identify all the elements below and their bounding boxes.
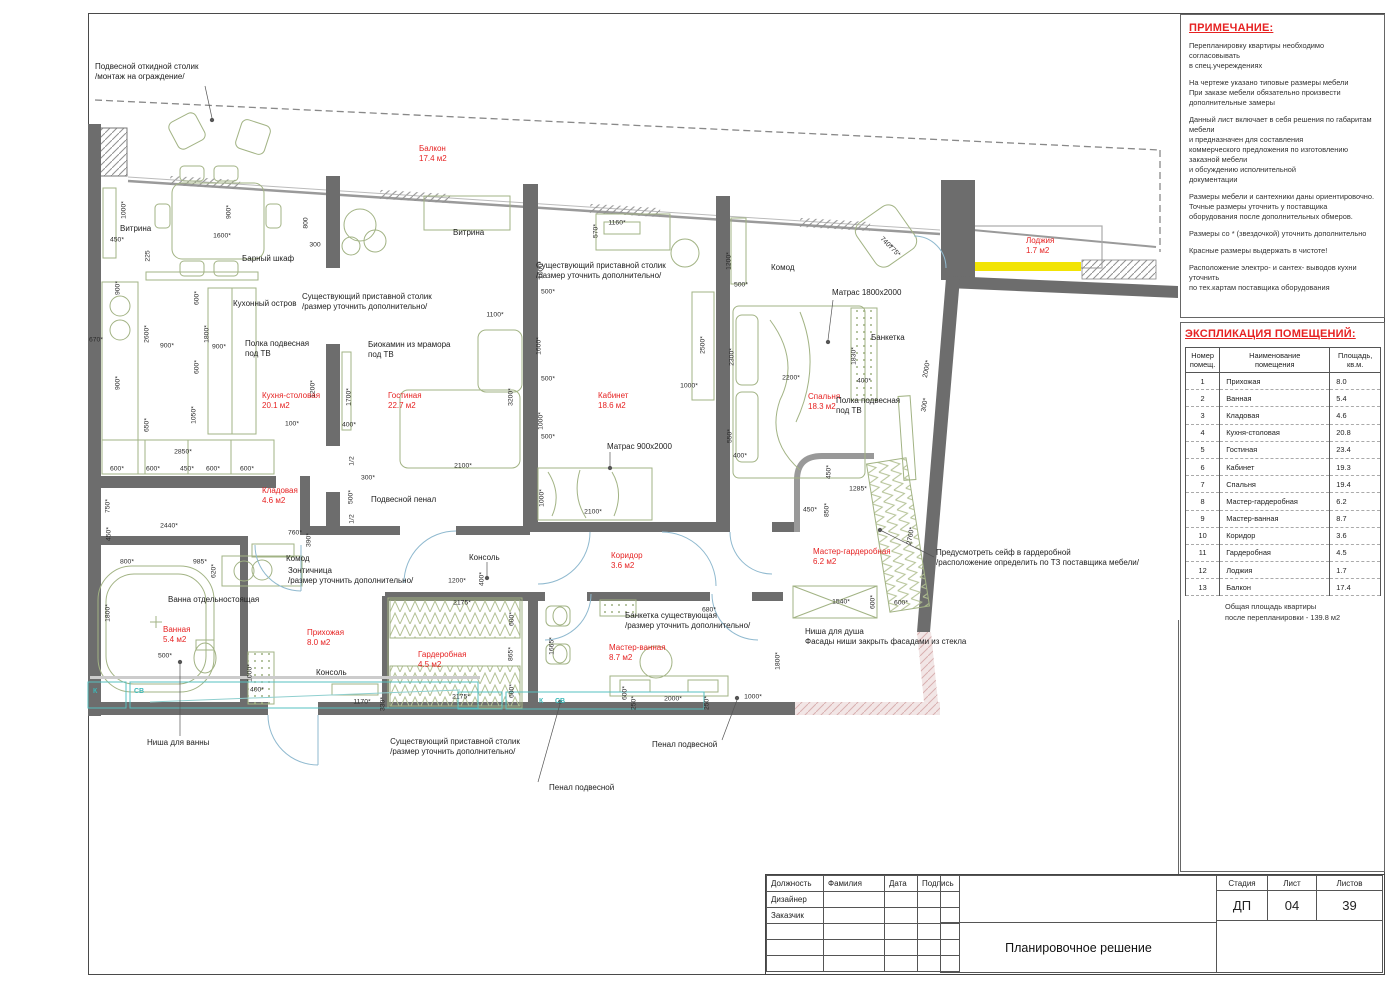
signature-table-body: ДизайнерЗаказчик: [767, 892, 960, 972]
dimension-label: 500*: [348, 490, 355, 504]
signature-row: [767, 940, 960, 956]
dimension-label: 225: [145, 250, 152, 261]
explication-row: 6Кабинет19.3: [1186, 458, 1381, 475]
dimension-label: 1800*: [105, 604, 112, 622]
explication-row: 9Мастер-ванная8.7: [1186, 510, 1381, 527]
dimension-label: 600*: [206, 466, 220, 473]
explication-cell: 4.6: [1330, 407, 1381, 424]
annotation-label: Предусмотреть сейф в гардеробной /распол…: [936, 548, 1139, 568]
dimension-label: 1000*: [538, 412, 545, 430]
dimension-label: 850*: [824, 503, 831, 517]
explication-cell: 7: [1186, 476, 1220, 493]
annotation-label: Консоль: [469, 553, 500, 563]
room-label: Кабинет 18.6 м2: [598, 391, 628, 410]
drawing-sheet: Балкон 17.4 м2Кухня-столовая 20.1 м2Гост…: [0, 0, 1400, 990]
dimension-label: 1285*: [849, 486, 867, 493]
dimension-label: 1100*: [486, 312, 503, 319]
annotation-label: Кухонный остров: [233, 299, 297, 309]
explication-cell: Коридор: [1220, 527, 1330, 544]
dimension-label: 390*: [306, 533, 313, 547]
signature-header-cell: Фамилия: [824, 876, 885, 892]
explication-cell: 13: [1186, 579, 1220, 596]
note-paragraph: Перепланировку квартиры необходимо согла…: [1189, 41, 1376, 71]
dimension-label: 900*: [226, 205, 233, 219]
annotation-label: Биокамин из мрамора под ТВ: [368, 340, 451, 360]
notes-panel: ПРИМЕЧАНИЕ: Перепланировку квартиры необ…: [1180, 14, 1385, 318]
room-label: Мастер-гардеробная 6.2 м2: [813, 547, 891, 566]
annotation-label: Банкетка существующая /размер уточнить д…: [625, 611, 750, 631]
explication-row: 13Балкон17.4: [1186, 579, 1381, 596]
dimension-label: 750*: [105, 499, 112, 513]
dimension-label: 570*: [593, 224, 600, 238]
signature-cell: [885, 892, 918, 908]
note-paragraph: Размеры со * (звездочкой) уточнить допол…: [1189, 229, 1376, 239]
dimension-label: 250*: [631, 696, 638, 710]
dimension-label: 2850*: [174, 449, 192, 456]
signature-cell: [767, 924, 824, 940]
dimension-label: 900*: [115, 376, 122, 390]
utility-label: К: [93, 688, 97, 695]
explication-cell: 4.5: [1330, 544, 1381, 561]
notes-paragraphs: Перепланировку квартиры необходимо согла…: [1189, 41, 1376, 293]
note-paragraph: Расположение электро- и сантех- выводов …: [1189, 263, 1376, 293]
dimension-label: 1200*: [310, 380, 317, 398]
sheet-label: Лист: [1267, 875, 1317, 891]
dimension-label: 330*: [380, 697, 387, 711]
dimension-label: 1000*: [538, 261, 545, 279]
dimension-label: 2100*: [454, 463, 472, 470]
room-label: Балкон 17.4 м2: [419, 144, 447, 163]
dimension-label: 450*: [826, 465, 833, 479]
explication-table: Номер помещ. Наименование помещения Площ…: [1185, 347, 1381, 596]
dimension-label: 1800*: [204, 325, 211, 343]
dimension-label: 400*: [342, 422, 356, 429]
utility-label: СВ: [134, 688, 144, 695]
signature-cell: [824, 924, 885, 940]
explication-cell: Кладовая: [1220, 407, 1330, 424]
dimension-label: 2175*: [453, 600, 471, 607]
dimension-label: 1/2: [349, 514, 356, 523]
explication-row: 7Спальня19.4: [1186, 476, 1381, 493]
dimension-label: 985*: [193, 559, 207, 566]
dimension-label: 500*: [734, 282, 748, 289]
explication-cell: 6.2: [1330, 493, 1381, 510]
signature-row: Дизайнер: [767, 892, 960, 908]
dimension-label: 600*: [194, 360, 201, 374]
dimension-label: 300*: [920, 397, 929, 412]
explication-cell: 3: [1186, 407, 1220, 424]
title-block-empty-right: [1216, 920, 1383, 973]
sheet-value: 04: [1267, 890, 1317, 921]
dimension-label: 600*: [894, 600, 908, 607]
dimension-label: 1000*: [121, 201, 128, 219]
signature-cell: [824, 940, 885, 956]
annotation-label: Консоль: [316, 668, 347, 678]
notes-title: ПРИМЕЧАНИЕ:: [1189, 22, 1376, 34]
annotation-label: Барный шкаф: [242, 254, 294, 264]
dimension-label: 1200*: [726, 252, 733, 270]
explication-cell: 23.4: [1330, 441, 1381, 458]
dimension-label: 2000*: [922, 360, 932, 379]
doc-title-cell: Планировочное решение: [940, 922, 1217, 973]
explication-cell: 2: [1186, 390, 1220, 407]
dimension-label: 1000*: [680, 383, 698, 390]
note-paragraph: На чертеже указано типовые размеры мебел…: [1189, 78, 1376, 108]
dimension-label: 670*: [89, 337, 103, 344]
signature-cell: [824, 956, 885, 972]
explication-cell: 3.6: [1330, 527, 1381, 544]
room-label: Лоджия 1.7 м2: [1026, 236, 1054, 255]
note-paragraph: Данный лист включает в себя решения по г…: [1189, 115, 1376, 185]
explication-cell: Мастер-гардеробная: [1220, 493, 1330, 510]
explication-row: 1Прихожая8.0: [1186, 373, 1381, 390]
dimension-label: 1830*: [851, 347, 858, 365]
explication-header-name: Наименование помещения: [1220, 348, 1330, 373]
dimension-label: 500*: [541, 434, 555, 441]
title-block-empty-cell: [940, 875, 1217, 923]
room-label: Прихожая 8.0 м2: [307, 628, 344, 647]
annotation-label: Полка подвесная под ТВ: [245, 339, 309, 359]
dimension-label: 620*: [211, 564, 218, 578]
dimension-label: 600*: [194, 291, 201, 305]
explication-cell: 10: [1186, 527, 1220, 544]
dimension-label: 400*: [857, 378, 871, 385]
dimension-label: 1160*: [608, 220, 625, 227]
explication-cell: Мастер-ванная: [1220, 510, 1330, 527]
dimension-label: 1800*: [775, 652, 782, 670]
dimension-label: 450*: [106, 527, 113, 541]
dimension-label: 3200*: [508, 388, 515, 406]
explication-total: Общая площадь квартиры после перепланиро…: [1225, 602, 1380, 623]
dimension-label: 1000*: [744, 694, 762, 701]
utility-label: СВ: [555, 698, 565, 705]
explication-cell: 5: [1186, 441, 1220, 458]
dimension-label: 900*: [115, 281, 122, 295]
note-paragraph: Красные размеры выдержать в чистоте!: [1189, 246, 1376, 256]
annotation-label: Полка подвесная под ТВ: [836, 396, 900, 416]
annotation-label: Пенал подвесной: [549, 783, 614, 793]
stage-value: ДП: [1216, 890, 1268, 921]
explication-header-row: Номер помещ. Наименование помещения Площ…: [1186, 348, 1381, 373]
dimension-label: 400*: [733, 453, 747, 460]
dimension-label: 680*: [702, 607, 716, 614]
dimension-label: 1/2: [349, 456, 356, 465]
doc-title: Планировочное решение: [1005, 941, 1152, 955]
annotation-label: Витрина: [453, 228, 484, 238]
dimension-label: 400*: [479, 572, 486, 586]
dimension-label: 775*: [887, 244, 902, 259]
annotation-label: Подвесной пенал: [371, 495, 436, 505]
dimension-label: 2000*: [664, 696, 682, 703]
dimension-label: 500*: [541, 376, 555, 383]
signature-cell: [885, 924, 918, 940]
dimension-label: 800: [303, 217, 310, 228]
dimension-label: 1200*: [448, 578, 466, 585]
dimension-label: 1170*: [353, 699, 370, 706]
explication-cell: Прихожая: [1220, 373, 1330, 390]
signature-cell: Заказчик: [767, 908, 824, 924]
explication-row: 5Гостиная23.4: [1186, 441, 1381, 458]
explication-cell: 11: [1186, 544, 1220, 561]
annotation-label: Ниша для душа Фасады ниши закрыть фасада…: [805, 627, 966, 647]
explication-cell: Кабинет: [1220, 458, 1330, 475]
annotation-label: Существующий приставной столик /размер у…: [536, 261, 666, 281]
dimension-label: 865*: [508, 647, 515, 661]
signature-cell: [824, 908, 885, 924]
explication-cell: 1: [1186, 373, 1220, 390]
signature-header-cell: Дата: [885, 876, 918, 892]
sheets-value: 39: [1316, 890, 1383, 921]
explication-cell: 8.0: [1330, 373, 1381, 390]
utility-label: К: [539, 698, 543, 705]
explication-panel: ЭКСПЛИКАЦИЯ ПОМЕЩЕНИЙ: Номер помещ. Наим…: [1180, 322, 1385, 872]
dimension-label: 2760*: [906, 527, 916, 546]
dimension-label: 600*: [240, 466, 254, 473]
explication-row: 2Ванная5.4: [1186, 390, 1381, 407]
dimension-label: 2100*: [584, 509, 602, 516]
dimension-label: 100*: [285, 421, 299, 428]
signature-cell: [824, 892, 885, 908]
dimension-label: 250*: [704, 696, 711, 710]
signature-table: ДолжностьФамилияДатаПодпись ДизайнерЗака…: [766, 875, 960, 972]
explication-body: 1Прихожая8.02Ванная5.43Кладовая4.64Кухня…: [1186, 373, 1381, 596]
explication-cell: 8.7: [1330, 510, 1381, 527]
dimension-label: 2600*: [144, 325, 151, 343]
explication-row: 12Лоджия1.7: [1186, 562, 1381, 579]
sheets-label: Листов: [1316, 875, 1383, 891]
dimension-label: 650*: [144, 418, 151, 432]
annotation-label: Комод: [286, 554, 310, 564]
explication-cell: Гардеробная: [1220, 544, 1330, 561]
dimension-label: 1000*: [247, 664, 254, 682]
dimension-label: 2175*: [452, 694, 470, 701]
dimension-label: 600*: [870, 595, 877, 609]
dimension-label: 450*: [803, 507, 817, 514]
dimension-label: 300*: [361, 475, 375, 482]
explication-cell: 20.8: [1330, 424, 1381, 441]
explication-cell: Ванная: [1220, 390, 1330, 407]
room-label: Гардеробная 4.5 м2: [418, 650, 466, 669]
dimension-label: 2500*: [700, 336, 707, 354]
annotation-label: Витрина: [120, 224, 151, 234]
explication-cell: 19.4: [1330, 476, 1381, 493]
explication-cell: Гостиная: [1220, 441, 1330, 458]
dimension-label: 900*: [212, 344, 226, 351]
annotation-label: Зонтичница /размер уточнить дополнительн…: [288, 566, 413, 586]
dimension-label: 450*: [110, 237, 124, 244]
dimension-label: 1665*: [549, 637, 556, 655]
room-label: Кладовая 4.6 м2: [262, 486, 298, 505]
note-paragraph: Размеры мебели и сантехники даны ориенти…: [1189, 192, 1376, 222]
signature-header-row: ДолжностьФамилияДатаПодпись: [767, 876, 960, 892]
signature-cell: [767, 940, 824, 956]
dimension-label: 900*: [160, 343, 174, 350]
explication-cell: Кухня-столовая: [1220, 424, 1330, 441]
explication-title: ЭКСПЛИКАЦИЯ ПОМЕЩЕНИЙ:: [1185, 328, 1380, 340]
dimension-label: 500*: [158, 653, 172, 660]
explication-cell: 1.7: [1330, 562, 1381, 579]
signature-cell: Дизайнер: [767, 892, 824, 908]
annotation-label: Ниша для ванны: [147, 738, 209, 748]
explication-cell: 19.3: [1330, 458, 1381, 475]
dimension-label: 1000*: [539, 489, 546, 507]
room-label: Коридор 3.6 м2: [611, 551, 643, 570]
dimension-label: 1700*: [346, 388, 353, 406]
signature-cell: [885, 908, 918, 924]
dimension-label: 500*: [541, 289, 555, 296]
room-label: Гостиная 22.7 м2: [388, 391, 422, 410]
explication-cell: 5.4: [1330, 390, 1381, 407]
explication-cell: 8: [1186, 493, 1220, 510]
dimension-label: 2300*: [729, 348, 736, 366]
annotation-label: Пенал подвесной: [652, 740, 717, 750]
dimension-label: 400*: [250, 687, 264, 694]
explication-row: 10Коридор3.6: [1186, 527, 1381, 544]
annotation-label: Подвесной откидной столик /монтаж на огр…: [95, 62, 198, 82]
explication-header-num: Номер помещ.: [1186, 348, 1220, 373]
signature-row: [767, 924, 960, 940]
explication-cell: 17.4: [1330, 579, 1381, 596]
panel-separator-line: [1178, 620, 1179, 874]
dimension-label: 600*: [509, 612, 516, 626]
dimension-label: 1050*: [191, 406, 198, 424]
explication-row: 4Кухня-столовая20.8: [1186, 424, 1381, 441]
dimension-label: 600*: [110, 466, 124, 473]
signature-row: Заказчик: [767, 908, 960, 924]
room-label: Ванная 5.4 м2: [163, 625, 190, 644]
explication-cell: Спальня: [1220, 476, 1330, 493]
annotation-label: Комод: [771, 263, 795, 273]
stage-label: Стадия: [1216, 875, 1268, 891]
dimension-label: 2440*: [160, 523, 178, 530]
dimension-label: 1540*: [832, 599, 850, 606]
explication-cell: 9: [1186, 510, 1220, 527]
dimension-label: 450*: [180, 466, 194, 473]
explication-cell: Балкон: [1220, 579, 1330, 596]
signature-header-cell: Должность: [767, 876, 824, 892]
annotation-label: Существующий приставной столик /размер у…: [390, 737, 520, 757]
dimension-label: 1600*: [536, 337, 543, 355]
annotation-label: Ванна отдельностоящая: [168, 595, 259, 605]
dimension-label: 550*: [727, 429, 734, 443]
signature-cell: [885, 940, 918, 956]
annotation-label: Матрас 900х2000: [607, 442, 672, 452]
explication-header-area: Площадь, кв.м.: [1330, 348, 1381, 373]
explication-cell: 4: [1186, 424, 1220, 441]
title-block: ДолжностьФамилияДатаПодпись ДизайнерЗака…: [765, 874, 1385, 975]
explication-cell: 12: [1186, 562, 1220, 579]
signature-cell: [885, 956, 918, 972]
dimension-label: 800*: [120, 559, 134, 566]
explication-row: 11Гардеробная4.5: [1186, 544, 1381, 561]
annotation-label: Существующий приставной столик /размер у…: [302, 292, 432, 312]
dimension-label: 600*: [146, 466, 160, 473]
explication-row: 8Мастер-гардеробная6.2: [1186, 493, 1381, 510]
signature-row: [767, 956, 960, 972]
explication-cell: 6: [1186, 458, 1220, 475]
annotation-label: Банкетка: [871, 333, 905, 343]
dimension-label: 2200*: [782, 375, 800, 382]
signature-cell: [767, 956, 824, 972]
explication-cell: Лоджия: [1220, 562, 1330, 579]
explication-row: 3Кладовая4.6: [1186, 407, 1381, 424]
annotation-label: Матрас 1800х2000: [832, 288, 901, 298]
dimension-label: 300: [309, 242, 320, 249]
dimension-label: 600*: [509, 684, 516, 698]
room-label: Мастер-ванная 8.7 м2: [609, 643, 666, 662]
dimension-label: 1600*: [213, 233, 231, 240]
dimension-label: 600*: [622, 686, 629, 700]
dimension-label: 760*: [288, 530, 302, 537]
